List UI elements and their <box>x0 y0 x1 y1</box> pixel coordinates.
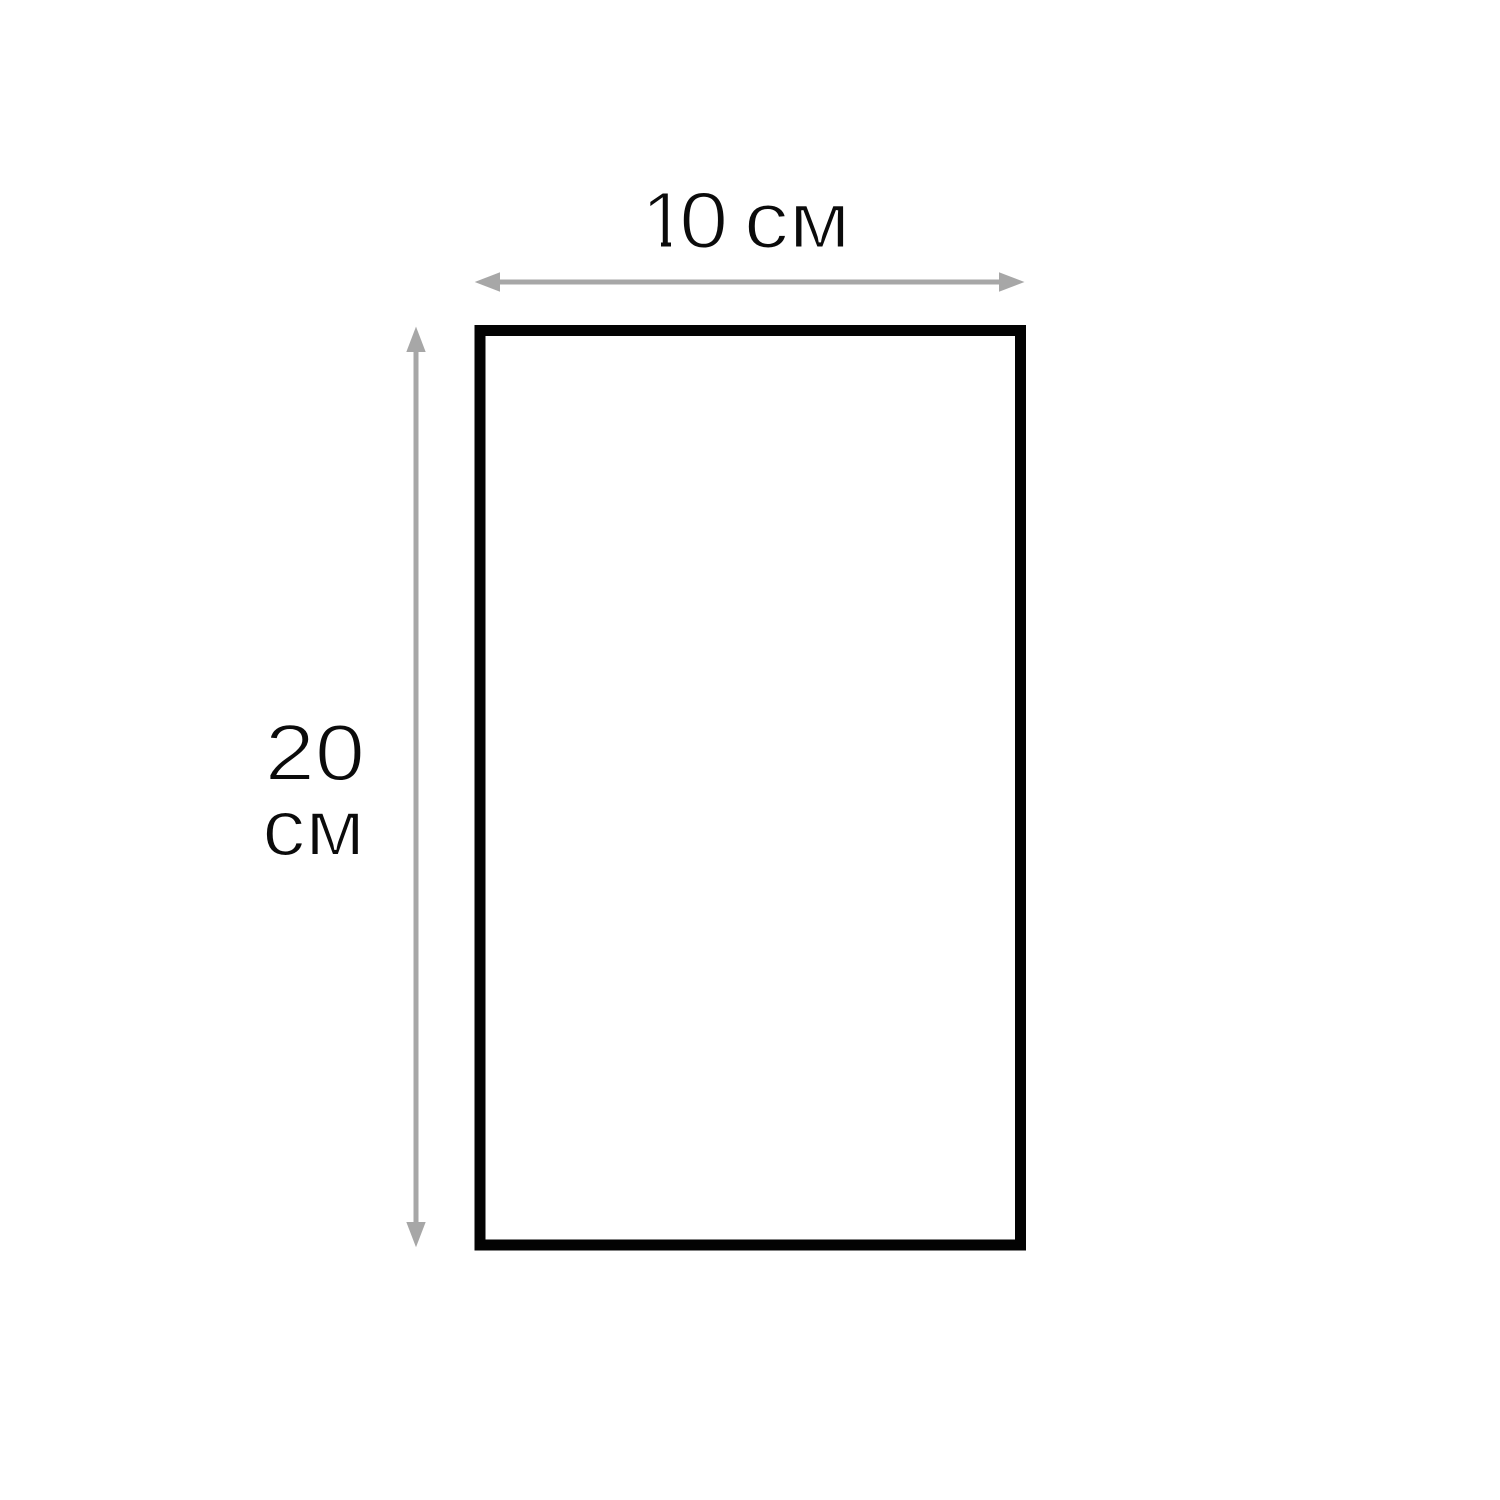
svg-text:0: 0 <box>679 176 728 265</box>
svg-text:см: см <box>744 176 851 265</box>
svg-text:см: см <box>262 783 365 872</box>
